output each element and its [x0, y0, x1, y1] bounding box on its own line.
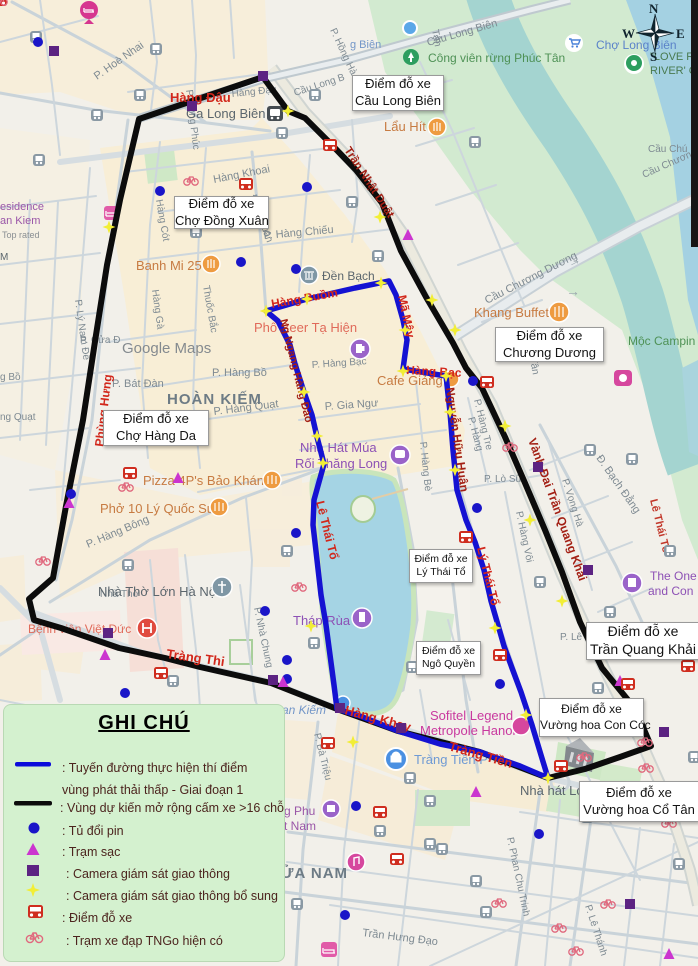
svg-text:Nhà hát Ló: Nhà hát Ló — [520, 783, 584, 798]
svg-text:Phở 10 Lý Quốc Sư: Phở 10 Lý Quốc Sư — [100, 501, 216, 516]
svg-text:Metropole Hanoi: Metropole Hanoi — [420, 723, 515, 738]
svg-text:RIVER' C: RIVER' C — [650, 65, 697, 77]
svg-text:Nhà Thờ Lớn Hà Nội: Nhà Thờ Lớn Hà Nội — [98, 584, 219, 599]
svg-text:g Phu: g Phu — [284, 804, 315, 818]
svg-text:Nhà Hát Múa: Nhà Hát Múa — [300, 440, 377, 455]
svg-text:Khang Buffet: Khang Buffet — [474, 305, 549, 320]
svg-text:Công viên rừng Phúc Tân: Công viên rừng Phúc Tân — [428, 51, 565, 65]
svg-text:g Bồ: g Bồ — [0, 371, 21, 383]
svg-text:→: → — [566, 283, 580, 299]
svg-text:Lẩu Hít: Lẩu Hít — [384, 119, 426, 134]
svg-text:P. Bát Đàn: P. Bát Đàn — [112, 378, 164, 390]
svg-text:g Biên: g Biên — [350, 39, 381, 51]
svg-text:P. Hàng Bồ: P. Hàng Bồ — [212, 367, 267, 379]
svg-text:Ga Long Biên: Ga Long Biên — [186, 106, 266, 121]
svg-text:W: W — [622, 26, 635, 41]
svg-text:an Kiem: an Kiem — [0, 215, 40, 227]
svg-text:Đền Bạch: Đền Bạch — [322, 269, 375, 283]
svg-text:P. Cửa Đ: P. Cửa Đ — [80, 334, 120, 346]
svg-text:E: E — [676, 26, 685, 41]
svg-text:Phố Beer Tạ Hiện: Phố Beer Tạ Hiện — [254, 320, 357, 335]
svg-text:Chợ Long Biên: Chợ Long Biên — [596, 38, 677, 52]
svg-text:Rối Thăng Long: Rối Thăng Long — [295, 456, 387, 471]
svg-text:Banh Mi 25: Banh Mi 25 — [136, 258, 202, 273]
svg-text:Sofitel Legend: Sofitel Legend — [430, 708, 513, 723]
svg-text:N: N — [649, 1, 659, 16]
svg-text:esidence: esidence — [0, 201, 44, 213]
svg-text:Hàng Bạc: Hàng Bạc — [406, 363, 462, 380]
svg-text:P. Lò Sũ: P. Lò Sũ — [484, 474, 521, 485]
svg-text:S: S — [650, 49, 657, 64]
svg-text:Pizza 4P's Bảo Khánh: Pizza 4P's Bảo Khánh — [143, 473, 271, 488]
svg-text:Mộc Campin: Mộc Campin — [628, 334, 695, 348]
svg-text:Hàng Đậu: Hàng Đậu — [170, 90, 231, 105]
svg-text:Top rated: Top rated — [2, 230, 40, 240]
svg-text:M: M — [0, 252, 8, 263]
svg-text:HOÀN KIẾM: HOÀN KIẾM — [167, 391, 262, 408]
svg-text:ỬA NAM: ỬA NAM — [281, 864, 348, 882]
svg-text:t Nam: t Nam — [284, 819, 316, 833]
svg-text:The One: The One — [650, 569, 697, 583]
svg-text:ng Quạt: ng Quạt — [0, 412, 36, 423]
svg-text:Google Maps: Google Maps — [122, 340, 211, 357]
svg-text:and Con: and Con — [648, 584, 693, 598]
